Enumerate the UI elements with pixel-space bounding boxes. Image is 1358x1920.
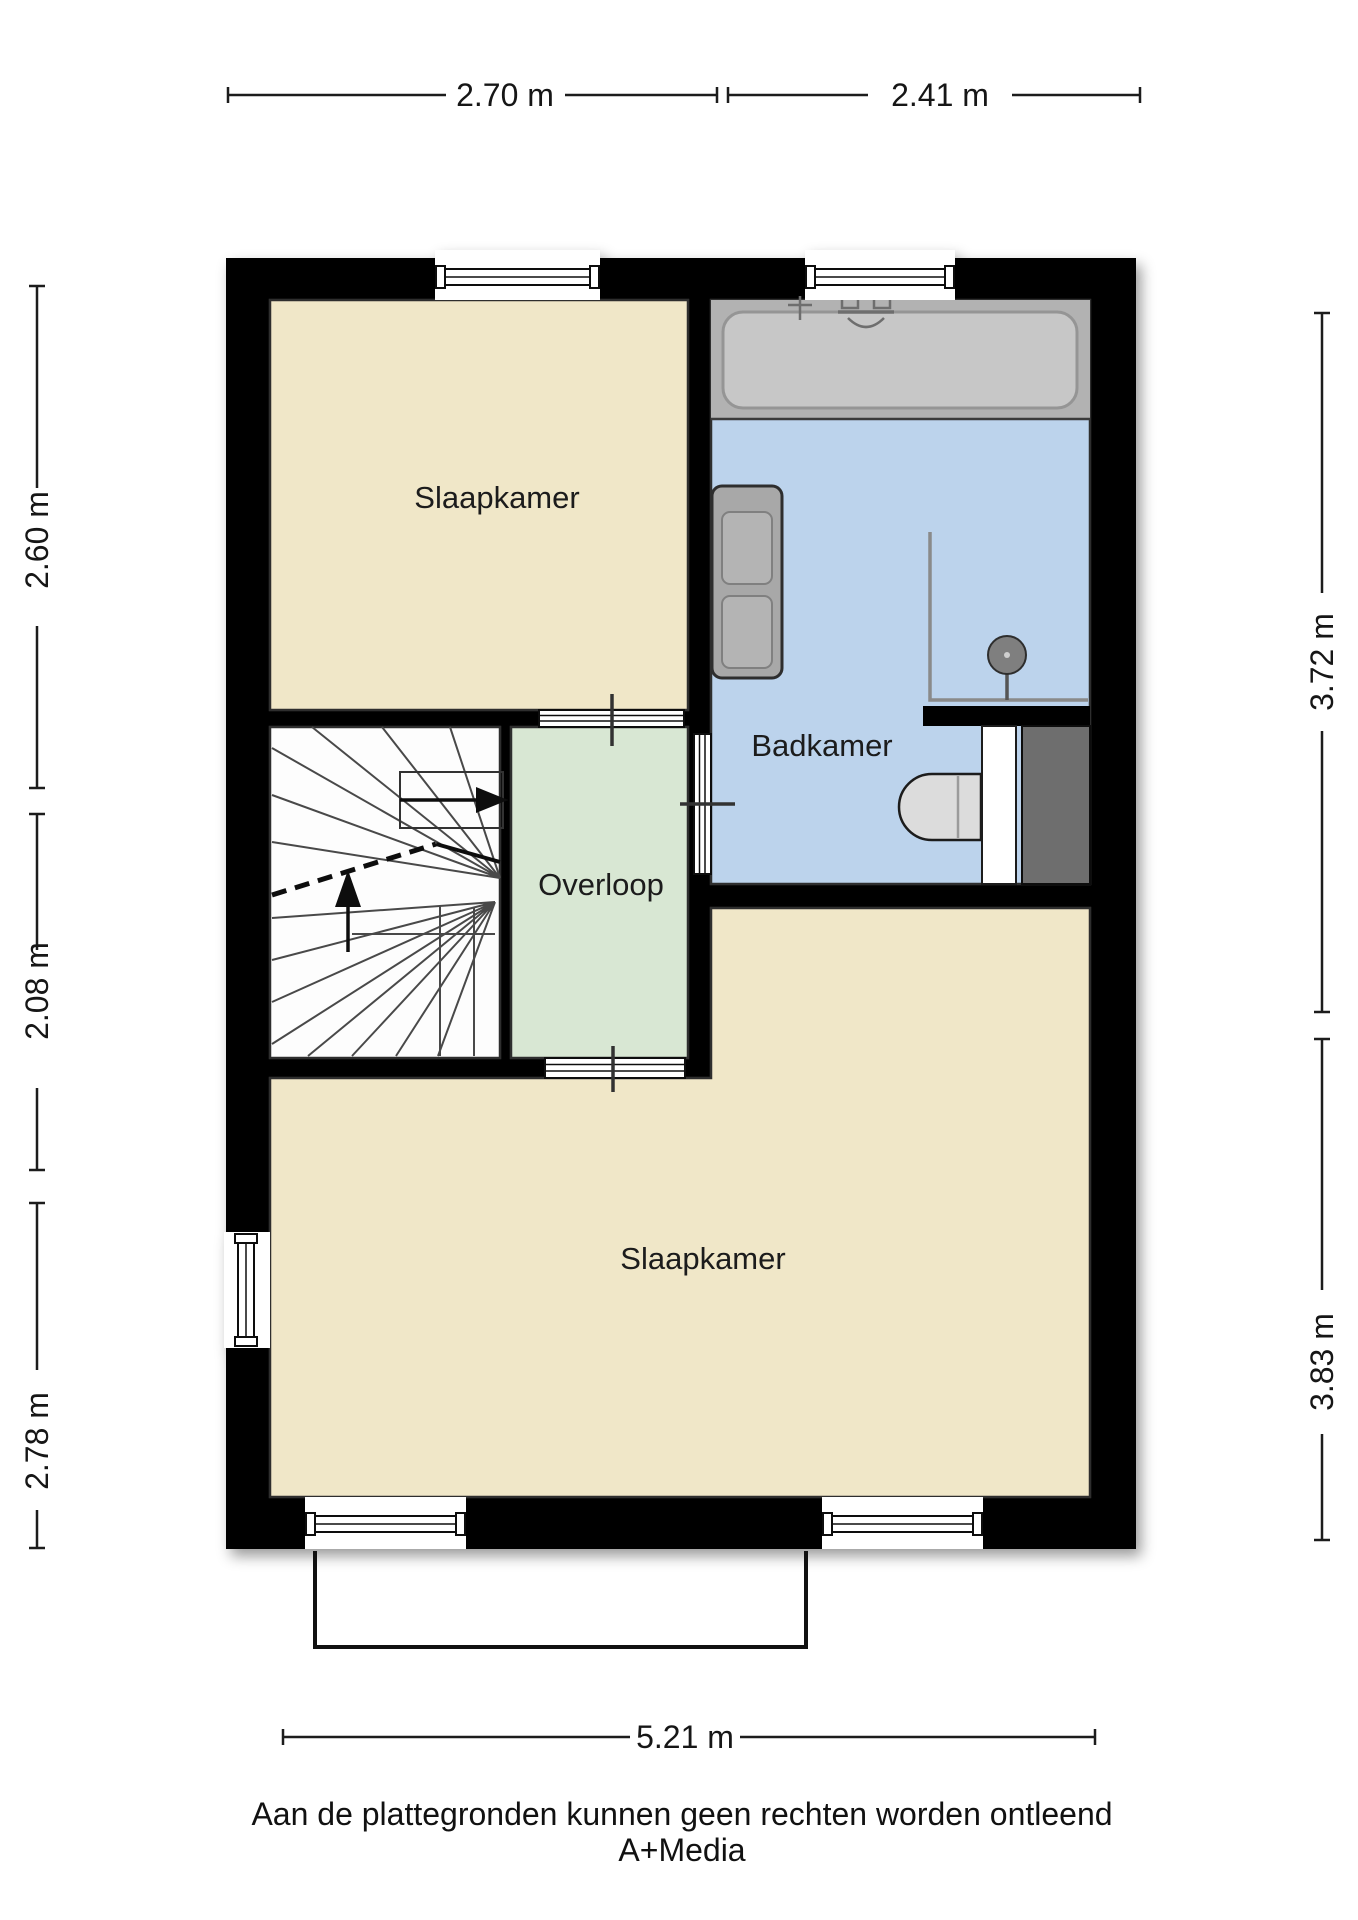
shower-partition-wall — [923, 706, 1090, 726]
window-top-bedroom — [435, 250, 600, 300]
dim-right-1: 3.72 m — [1304, 613, 1340, 711]
floor-plan-canvas: Slaapkamer Badkamer Overloop Slaapkamer … — [0, 0, 1358, 1920]
dimension-bottom: 5.21 m — [283, 1719, 1095, 1755]
terrace-outline — [315, 1551, 806, 1647]
dim-bottom-1: 5.21 m — [636, 1719, 734, 1755]
dimension-left: 2.60 m 2.08 m 2.78 m — [19, 286, 55, 1548]
label-bathroom: Badkamer — [751, 728, 892, 763]
duct-panel — [982, 726, 1016, 884]
dimension-top: 2.70 m 2.41 m — [228, 77, 1140, 113]
footer-credit: A+Media — [618, 1832, 745, 1868]
dim-left-1: 2.60 m — [19, 491, 55, 589]
window-bottom-right — [822, 1497, 983, 1549]
building: Slaapkamer Badkamer Overloop Slaapkamer — [224, 250, 1136, 1549]
bathtub-icon — [711, 294, 1090, 420]
window-top-bathroom — [805, 250, 955, 300]
toilet-icon — [899, 774, 981, 840]
dim-right-2: 3.83 m — [1304, 1313, 1340, 1411]
window-left-bedroom — [224, 1232, 270, 1348]
dark-cabinet-unit — [1022, 726, 1090, 884]
label-bedroom-bottom: Slaapkamer — [620, 1241, 785, 1276]
window-bottom-left — [305, 1497, 466, 1549]
footer-disclaimer: Aan de plattegronden kunnen geen rechten… — [251, 1796, 1112, 1832]
label-landing: Overloop — [538, 867, 664, 902]
label-bedroom-top: Slaapkamer — [414, 480, 579, 515]
washbasin-icon — [712, 486, 782, 678]
dimension-right: 3.72 m 3.83 m — [1304, 313, 1340, 1540]
dim-top-1: 2.70 m — [456, 77, 554, 113]
dim-left-3: 2.78 m — [19, 1392, 55, 1490]
dim-top-2: 2.41 m — [891, 77, 989, 113]
dim-left-2: 2.08 m — [19, 942, 55, 1040]
